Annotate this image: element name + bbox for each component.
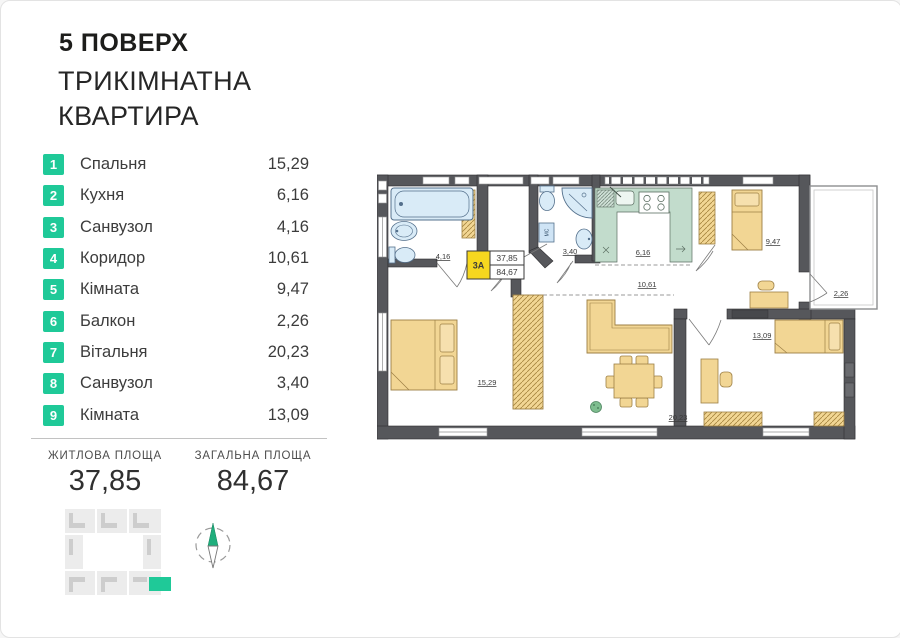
area-label-bedroom-second: 9,47 — [766, 237, 781, 246]
area-label-balcony: 2,26 — [834, 289, 849, 298]
room-area: 9,47 — [277, 280, 309, 299]
room-area: 10,61 — [268, 249, 309, 268]
toilet-icon — [540, 186, 555, 211]
area-label-bath-large: 3,40 — [563, 247, 578, 256]
bedroom-second: 9,47 — [732, 190, 788, 308]
room-area: 3,40 — [277, 374, 309, 393]
room-list-item: 3 Санвузол 4,16 — [43, 212, 309, 243]
plant-icon — [591, 402, 602, 413]
area-label-bedroom-main: 15,29 — [478, 378, 497, 387]
total-area-value: 84,67 — [179, 465, 327, 498]
room-list-item: 1 Спальня 15,29 — [43, 149, 309, 180]
toilet-icon — [389, 247, 415, 263]
area-label-kitchen: 6,16 — [636, 248, 651, 257]
room-area: 20,23 — [268, 343, 309, 362]
bed-icon — [391, 320, 457, 390]
room-number-badge: 6 — [43, 311, 64, 332]
compass-icon — [187, 519, 239, 571]
living-area-block: ЖИТЛОВА ПЛОЩА 37,85 — [31, 450, 179, 498]
kitchen: 6,16 — [595, 187, 715, 262]
room-name: Балкон — [80, 312, 135, 331]
building-site-plan — [51, 499, 181, 604]
apartment-type-line1: ТРИКІМНАТНА — [58, 64, 251, 99]
living-area-label: ЖИТЛОВА ПЛОЩА — [31, 450, 179, 462]
room-name: Санвузол — [80, 218, 153, 237]
area-label-bath-small: 4,16 — [436, 252, 451, 261]
bathtub-icon — [391, 188, 473, 220]
unit-code: 3А — [473, 261, 485, 271]
sink-icon — [576, 229, 592, 249]
room-number-badge: 2 — [43, 185, 64, 206]
room-name: Вітальня — [80, 343, 148, 362]
area-summary: ЖИТЛОВА ПЛОЩА 37,85 ЗАГАЛЬНА ПЛОЩА 84,67 — [31, 450, 327, 498]
corridor-dashed-lines — [543, 265, 692, 295]
room-list-item: 2 Кухня 6,16 — [43, 180, 309, 211]
bathroom-large: МС 3,40 — [539, 186, 592, 256]
room-number-badge: 8 — [43, 373, 64, 394]
area-label-corridor: 10,61 — [638, 280, 657, 289]
room-list-item: 6 Балкон 2,26 — [43, 305, 309, 336]
room-list-item: 4 Коридор 10,61 — [43, 243, 309, 274]
room-area: 15,29 — [268, 155, 309, 174]
shower-icon — [562, 188, 592, 218]
room-area: 4,16 — [277, 218, 309, 237]
bed-icon — [775, 320, 843, 353]
unit-info-table: 3А 37,85 84,67 — [467, 251, 524, 279]
room-name: Кухня — [80, 186, 124, 205]
desk-icon — [701, 359, 732, 403]
living-area-value: 37,85 — [31, 465, 179, 498]
desk-icon — [750, 281, 788, 308]
room-number-badge: 7 — [43, 342, 64, 363]
highlighted-unit — [149, 577, 171, 591]
stove-icon — [639, 192, 669, 213]
room-name: Коридор — [80, 249, 145, 268]
room-name: Санвузол — [80, 374, 153, 393]
washing-machine-icon: МС — [539, 223, 554, 242]
room-list-item: 5 Кімната 9,47 — [43, 274, 309, 305]
room-number-badge: 1 — [43, 154, 64, 175]
bedroom-main: 15,29 — [391, 295, 543, 409]
area-label-bedroom-third: 13,09 — [753, 331, 772, 340]
legend-divider — [31, 438, 327, 439]
total-area-block: ЗАГАЛЬНА ПЛОЩА 84,67 — [179, 450, 327, 498]
bed-icon — [732, 190, 762, 250]
total-area-label: ЗАГАЛЬНА ПЛОЩА — [179, 450, 327, 462]
living-room: 20,23 — [587, 300, 687, 422]
room-name: Спальня — [80, 155, 146, 174]
room-area: 6,16 — [277, 186, 309, 205]
room-list-item: 8 Санвузол 3,40 — [43, 368, 309, 399]
bedroom-third: 13,09 — [701, 320, 844, 426]
room-legend: 1 Спальня 15,29 2 Кухня 6,16 3 Санвузол … — [43, 149, 309, 431]
room-number-badge: 9 — [43, 405, 64, 426]
apartment-card: 5 ПОВЕРХ ТРИКІМНАТНА КВАРТИРА 1 Спальня … — [0, 0, 900, 638]
apartment-type-line2: КВАРТИРА — [58, 99, 251, 134]
area-label-living: 20,23 — [669, 413, 688, 422]
sofa-icon — [587, 300, 672, 353]
bathroom-small: 4,16 — [389, 188, 475, 263]
room-name: Кімната — [80, 406, 139, 425]
unit-total-area: 84,67 — [496, 267, 518, 277]
unit-living-area: 37,85 — [496, 253, 518, 263]
floor-plan: 4,16 3А 37,85 84,67 — [377, 167, 887, 451]
room-area: 2,26 — [277, 312, 309, 331]
room-list-item: 7 Вітальня 20,23 — [43, 337, 309, 368]
room-list-item: 9 Кімната 13,09 — [43, 399, 309, 430]
room-number-badge: 3 — [43, 217, 64, 238]
sink-icon — [391, 222, 417, 241]
svg-text:МС: МС — [545, 228, 551, 236]
room-area: 13,09 — [268, 406, 309, 425]
room-number-badge: 5 — [43, 279, 64, 300]
room-name: Кімната — [80, 280, 139, 299]
room-number-badge: 4 — [43, 248, 64, 269]
dining-table-icon — [606, 356, 662, 407]
floor-title: 5 ПОВЕРХ — [59, 29, 188, 58]
apartment-type-title: ТРИКІМНАТНА КВАРТИРА — [58, 64, 251, 134]
